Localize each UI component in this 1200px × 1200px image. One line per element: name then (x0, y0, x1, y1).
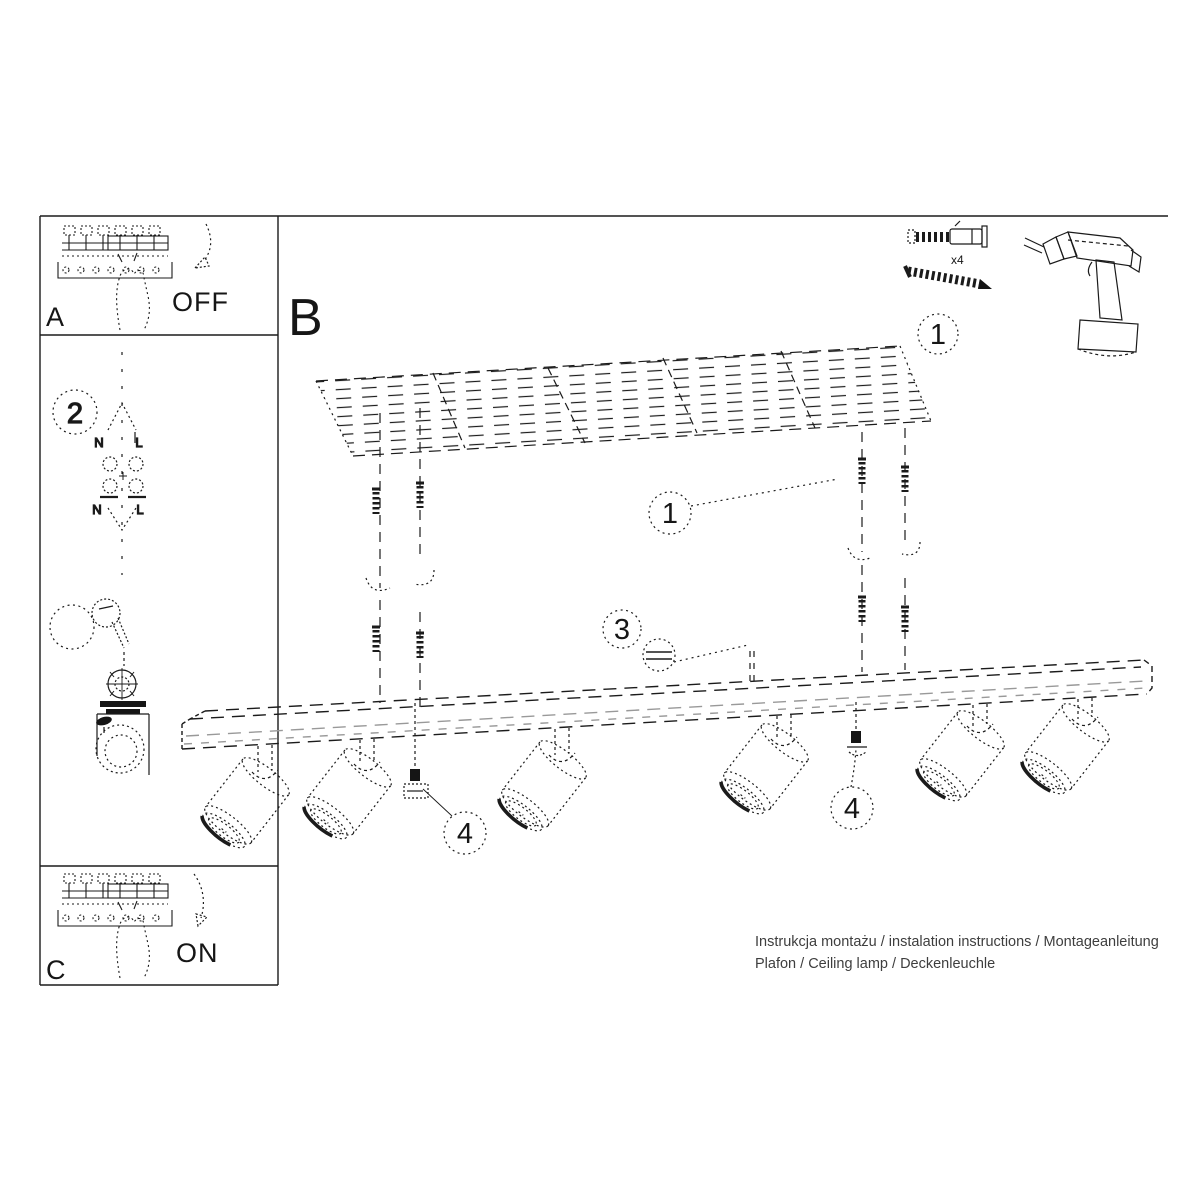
suspension-right (848, 428, 920, 672)
spotlight (298, 743, 397, 846)
finger-press-icon (117, 253, 150, 330)
wire-l-bottom: L (136, 502, 143, 517)
spotlight (196, 752, 295, 855)
frame-lines (40, 216, 1168, 985)
wire-n-bottom: N (92, 502, 101, 517)
step-1-number: 1 (662, 498, 678, 530)
on-label: ON (176, 938, 219, 968)
step-3-number: 3 (614, 614, 630, 646)
arrow-down-icon (108, 508, 136, 530)
wall-plug-screw-icon (908, 221, 987, 247)
diagram-canvas: A OFF 2 N L N L (0, 0, 1200, 1200)
callout-step-3-mid: 3 (603, 610, 754, 681)
spotlight (911, 705, 1010, 808)
callout-step-3-side (50, 605, 94, 649)
mounting-rail (182, 660, 1152, 749)
hardware-qty-label: x4 (951, 253, 964, 267)
instruction-sheet: A OFF 2 N L N L (0, 0, 1200, 1200)
screw-icon (92, 599, 129, 648)
terminal-screw-icon (643, 639, 675, 671)
off-arrow-icon (195, 224, 211, 268)
footer: Instrukcja montażu / instalation instruc… (755, 934, 1159, 972)
terminal-block-icon (58, 226, 172, 278)
ceiling-panel (316, 346, 931, 456)
long-screw-icon (905, 266, 992, 289)
step-1-number: 1 (930, 319, 946, 351)
on-arrow-icon (194, 874, 207, 926)
section-b-label: B (288, 289, 323, 347)
footer-line-1: Instrukcja montażu / instalation instruc… (755, 934, 1159, 950)
section-a: A OFF (46, 224, 229, 332)
section-a-label: A (46, 302, 64, 332)
spotlight (493, 735, 592, 838)
spotlight (715, 718, 814, 821)
bracket-plate (95, 701, 149, 775)
knurled-knob-icon (106, 668, 138, 700)
callout-step-4-left: 4 (423, 789, 486, 854)
callout-step-1-mid: 1 (649, 479, 838, 534)
section-c: C ON (46, 874, 219, 985)
main-diagram: B x4 1 (182, 221, 1152, 855)
cable-connector-left (404, 703, 428, 798)
arrow-up-icon (108, 403, 136, 430)
section-3-knob (50, 599, 149, 775)
callout-step-1-top: 1 (918, 314, 958, 354)
lamp-ring (96, 725, 144, 773)
section-2-wiring: 2 N L N L (53, 352, 146, 575)
drill-icon (1024, 232, 1141, 356)
spotlight (1016, 698, 1115, 801)
callout-step-4-right: 4 (831, 749, 873, 829)
step-2-number: 2 (67, 398, 83, 430)
wire-n-top: N (94, 435, 103, 450)
footer-line-2: Plafon / Ceiling lamp / Deckenleuchle (755, 956, 995, 972)
terminal-block-icon (58, 874, 172, 926)
off-label: OFF (172, 287, 229, 317)
ceiling-hook-icon (366, 570, 434, 590)
section-c-label: C (46, 955, 66, 985)
ceiling-hook-icon (848, 542, 920, 560)
wire-l-top: L (135, 435, 142, 450)
finger-press-icon (117, 901, 150, 978)
step-4-number: 4 (457, 818, 473, 850)
step-4-number: 4 (844, 793, 860, 825)
